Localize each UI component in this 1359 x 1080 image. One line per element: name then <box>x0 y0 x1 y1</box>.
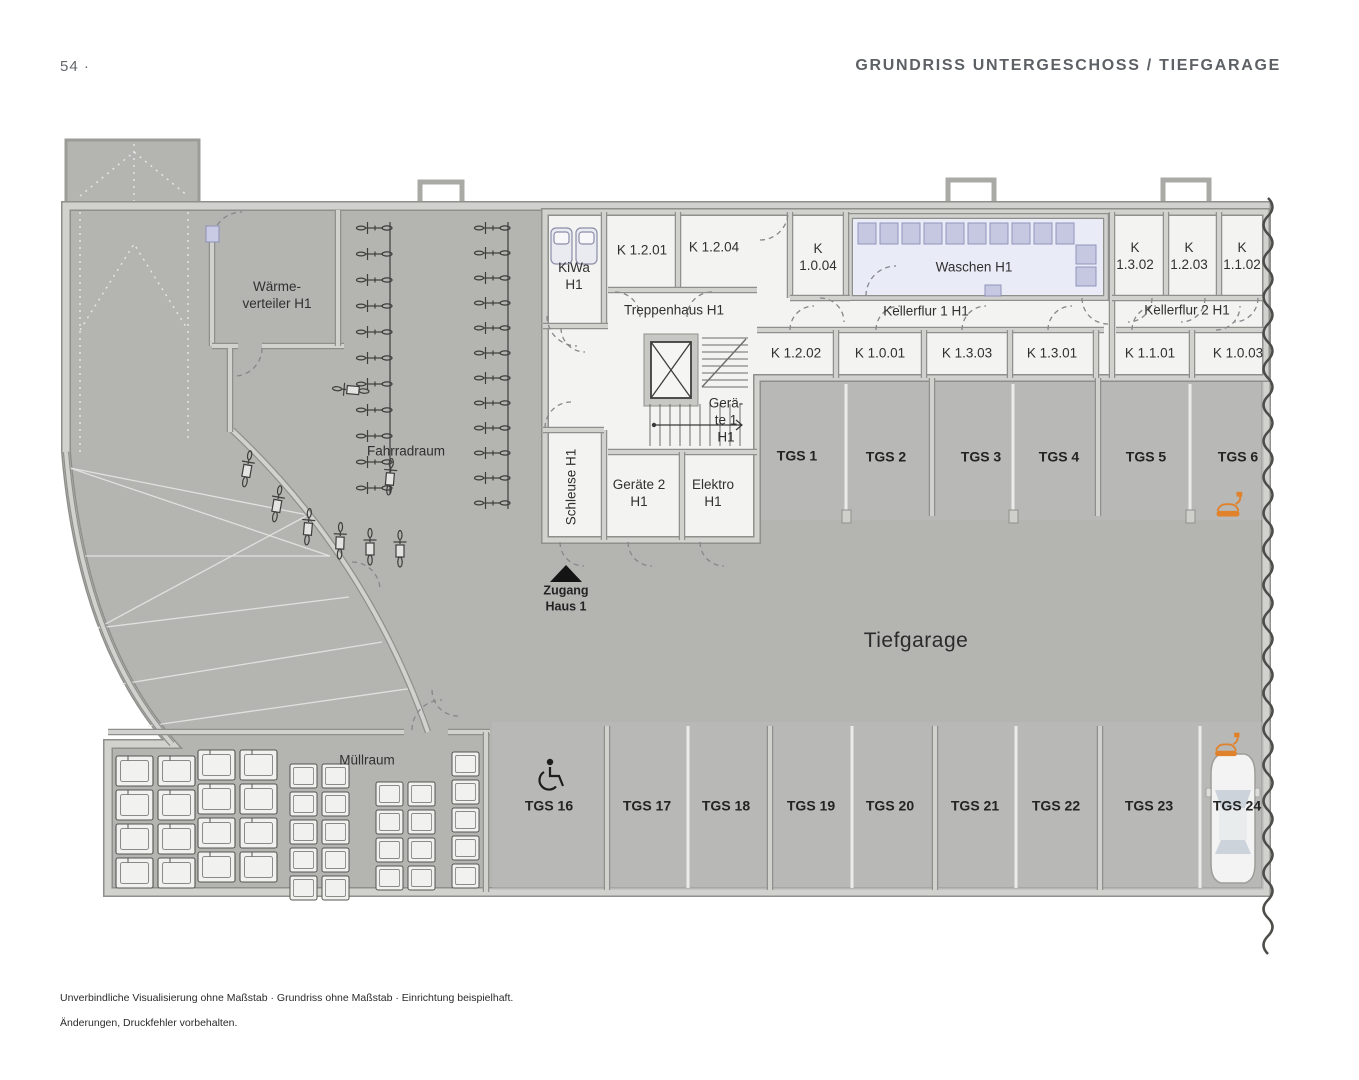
room-label-k1301: K 1.3.01 <box>1027 346 1077 363</box>
parking-label-tgs18: TGS 18 <box>702 797 750 815</box>
room-label-schleuse: Schleuse H1 <box>564 449 581 526</box>
room-label-k1004: K 1.0.04 <box>799 241 837 275</box>
room-label-treppenhaus: Treppenhaus H1 <box>624 303 724 320</box>
room-label-k1204: K 1.2.04 <box>689 240 739 257</box>
wall-fixture <box>206 226 219 242</box>
parking-label-tgs24: TGS 24 <box>1213 797 1261 815</box>
room-label-k1001: K 1.0.01 <box>855 346 905 363</box>
parking-label-tgs22: TGS 22 <box>1032 797 1080 815</box>
parking-label-tgs23: TGS 23 <box>1125 797 1173 815</box>
brochure-page: 54 · GRUNDRISS UNTERGESCHOSS / TIEFGARAG… <box>0 0 1359 1080</box>
parking-label-tgs17: TGS 17 <box>623 797 671 815</box>
room-label-geraete2: Geräte 2 H1 <box>613 477 666 511</box>
parking-label-tgs19: TGS 19 <box>787 797 835 815</box>
parking-label-tgs6: TGS 6 <box>1218 448 1258 466</box>
room-label-kellerflur2: Kellerflur 2 H1 <box>1144 303 1230 320</box>
entrance-label-zugang-haus1: Zugang Haus 1 <box>543 583 588 614</box>
room-label-k1102: K 1.1.02 <box>1223 240 1261 274</box>
footer-disclaimer-line1: Unverbindliche Visualisierung ohne Maßst… <box>60 992 513 1004</box>
car-icon <box>1206 754 1260 883</box>
parking-label-tgs5: TGS 5 <box>1126 448 1166 466</box>
parking-label-tgs4: TGS 4 <box>1039 448 1079 466</box>
room-label-geraete1: Gerä- te 1 H1 <box>709 396 744 447</box>
zone-label-tiefgarage: Tiefgarage <box>864 628 969 654</box>
room-label-k1101: K 1.1.01 <box>1125 346 1175 363</box>
room-label-k1201: K 1.2.01 <box>617 243 667 260</box>
room-label-elektro: Elektro H1 <box>692 477 734 511</box>
parking-label-tgs16: TGS 16 <box>525 797 573 815</box>
parking-label-tgs2: TGS 2 <box>866 448 906 466</box>
room-label-fahrradraum: Fahrradraum <box>367 444 445 461</box>
elevator-icon <box>644 334 698 406</box>
room-label-waschen: Waschen H1 <box>936 260 1013 277</box>
room-label-k1003: K 1.0.03 <box>1213 346 1263 363</box>
room-label-k1202: K 1.2.02 <box>771 346 821 363</box>
room-label-muellraum: Müllraum <box>339 753 395 770</box>
footer-disclaimer-line2: Änderungen, Druckfehler vorbehalten. <box>60 1017 237 1029</box>
parking-label-tgs20: TGS 20 <box>866 797 914 815</box>
room-label-k1303: K 1.3.03 <box>942 346 992 363</box>
room-label-k1302: K 1.3.02 <box>1116 240 1154 274</box>
ramp-top <box>66 140 199 210</box>
parking-label-tgs3: TGS 3 <box>961 448 1001 466</box>
room-label-kellerflur1: Kellerflur 1 H1 <box>883 304 969 321</box>
room-label-waermeverteiler: Wärme- verteiler H1 <box>242 279 311 313</box>
room-label-k1203: K 1.2.03 <box>1170 240 1208 274</box>
floor-plan <box>0 0 1359 1080</box>
waschen-room <box>850 216 1106 298</box>
parking-label-tgs21: TGS 21 <box>951 797 999 815</box>
room-label-kiwa: KiWa H1 <box>558 260 590 294</box>
parking-label-tgs1: TGS 1 <box>777 447 817 465</box>
